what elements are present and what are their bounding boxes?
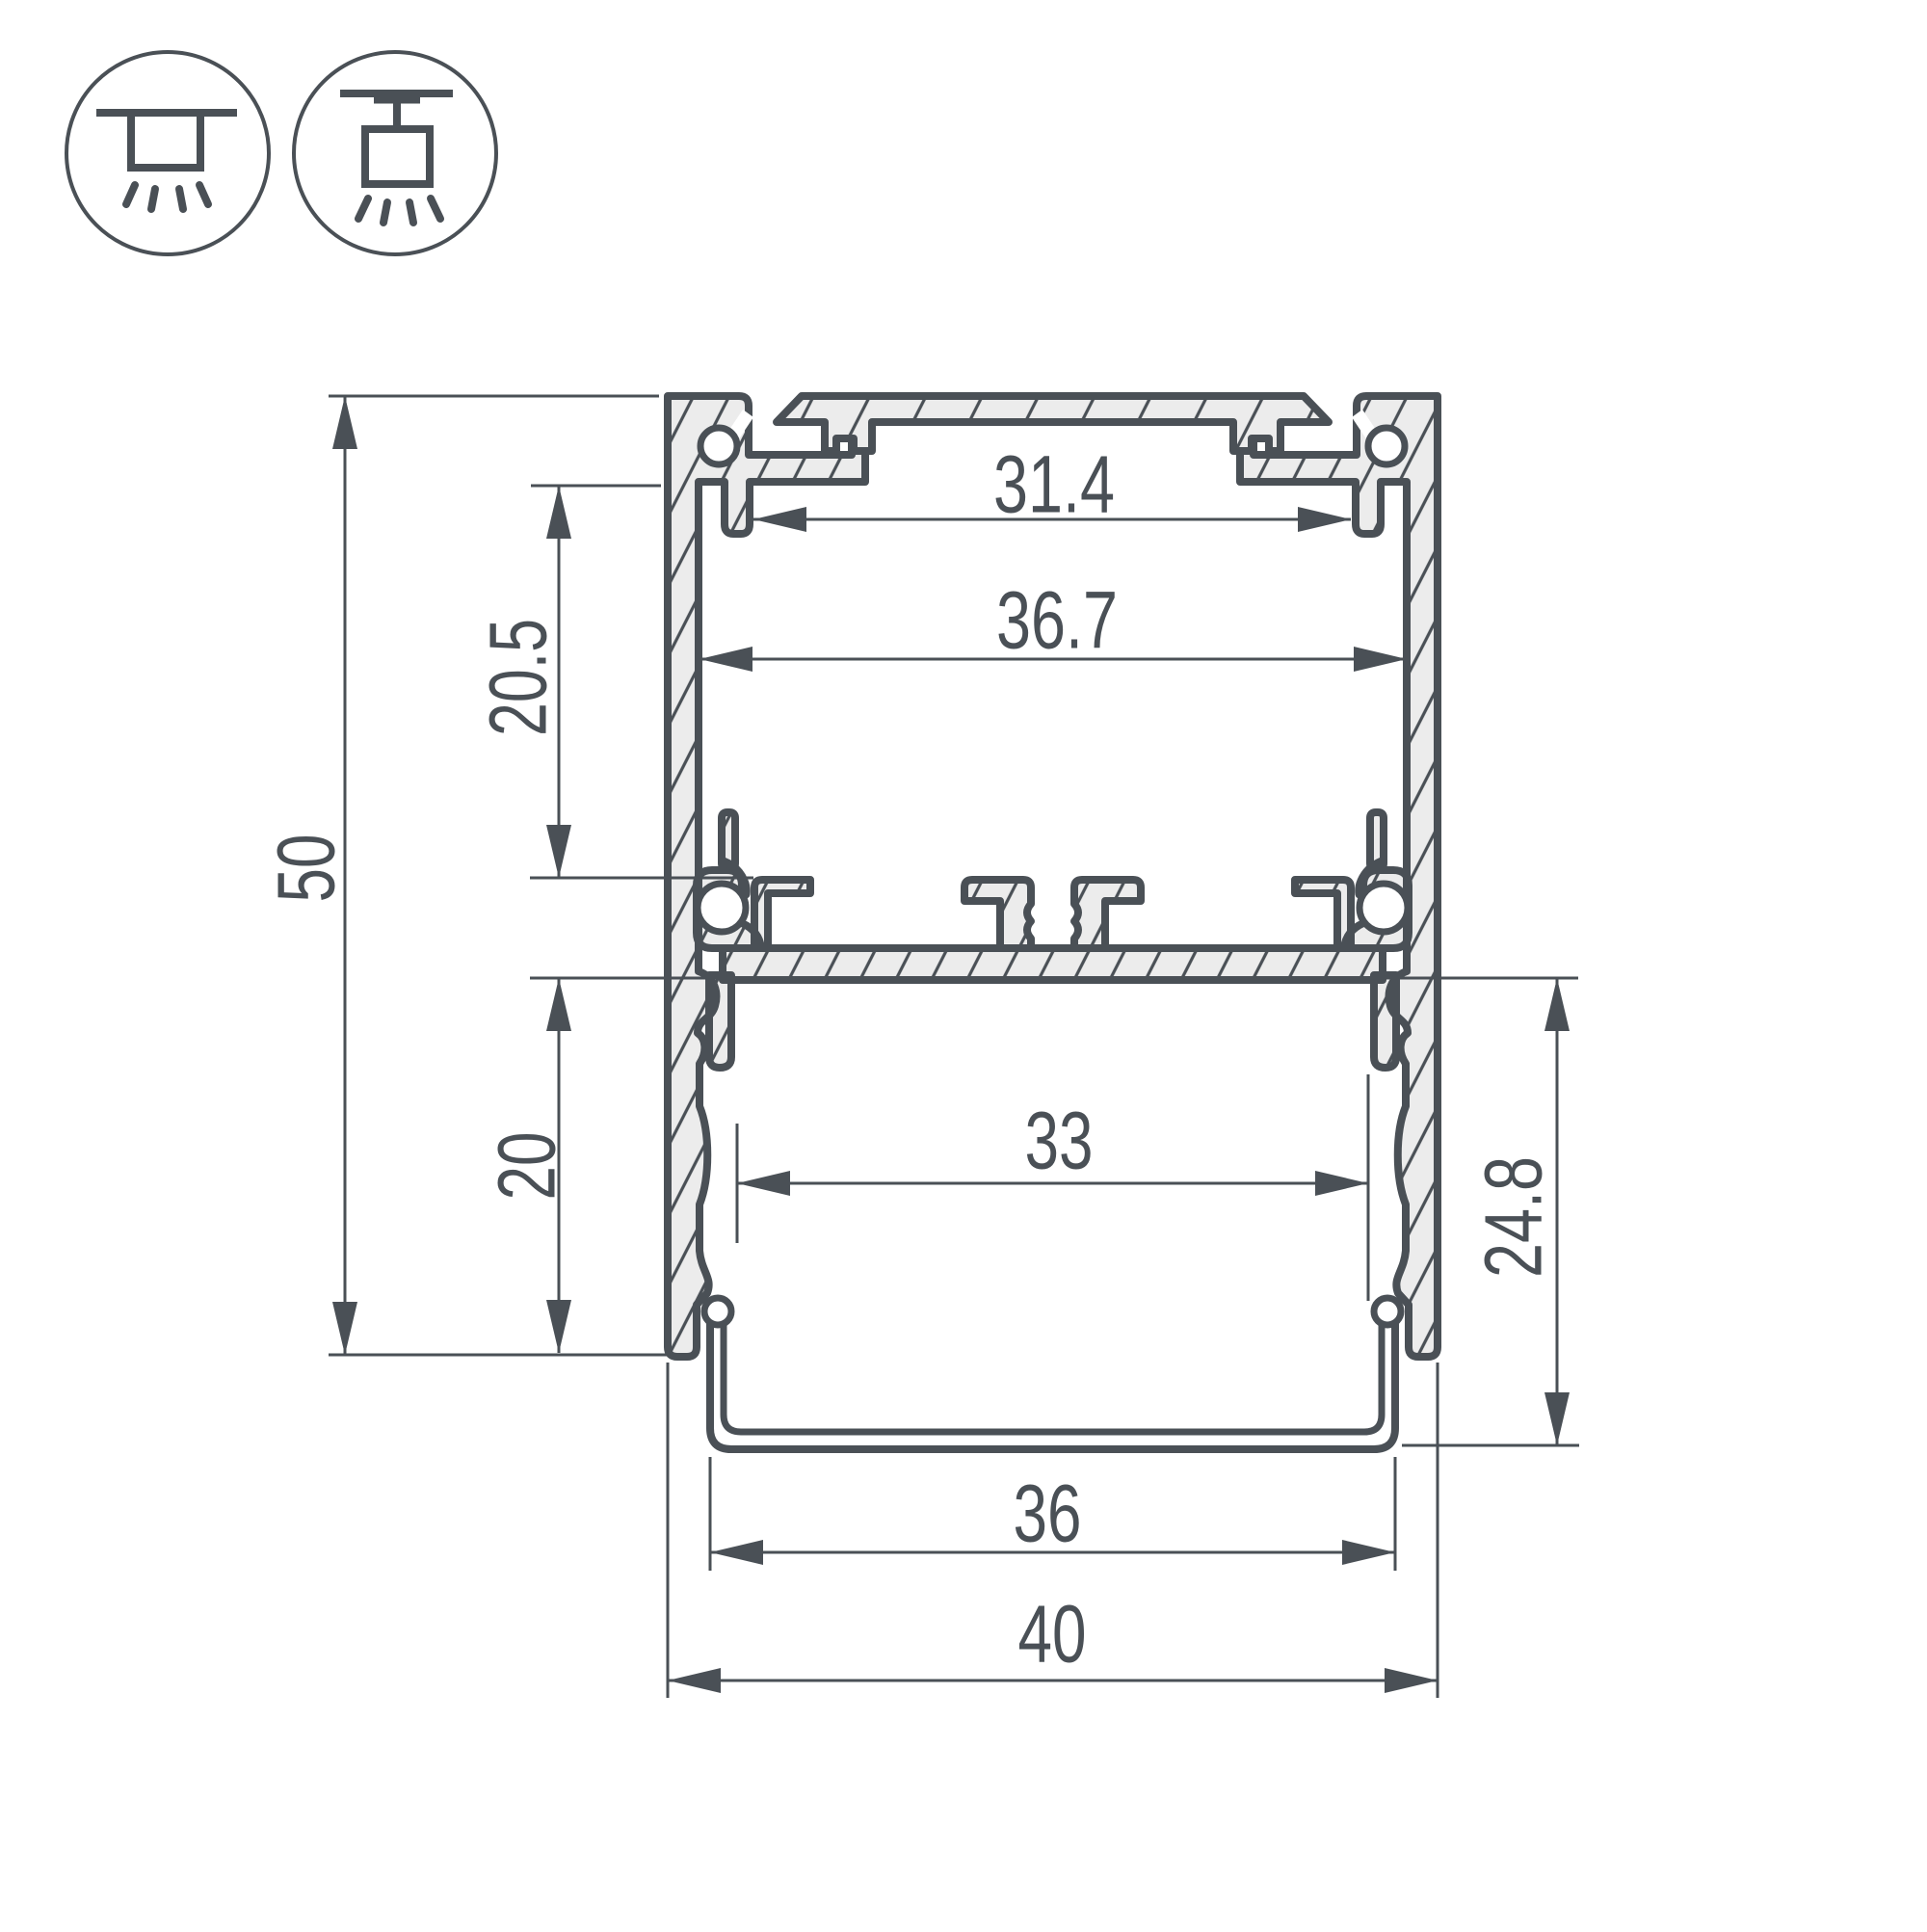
svg-text:24.8: 24.8: [1468, 1156, 1559, 1278]
svg-text:40: 40: [1018, 1589, 1087, 1680]
svg-text:36: 36: [1014, 1469, 1082, 1559]
svg-text:31.4: 31.4: [993, 439, 1115, 530]
svg-text:20.5: 20.5: [473, 619, 564, 736]
svg-text:50: 50: [261, 834, 352, 903]
svg-text:36.7: 36.7: [996, 575, 1118, 666]
svg-text:20: 20: [482, 1132, 572, 1201]
svg-text:33: 33: [1025, 1096, 1094, 1186]
